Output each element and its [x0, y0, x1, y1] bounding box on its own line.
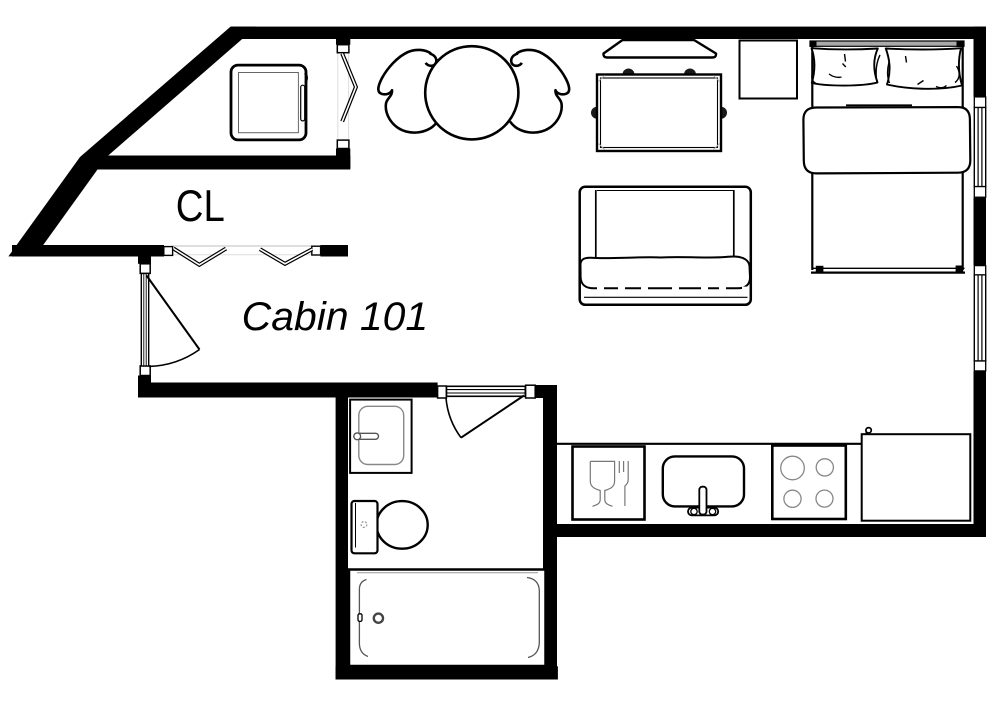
svg-text:CL: CL: [176, 182, 225, 231]
svg-text:Cabin 101: Cabin 101: [242, 295, 428, 339]
